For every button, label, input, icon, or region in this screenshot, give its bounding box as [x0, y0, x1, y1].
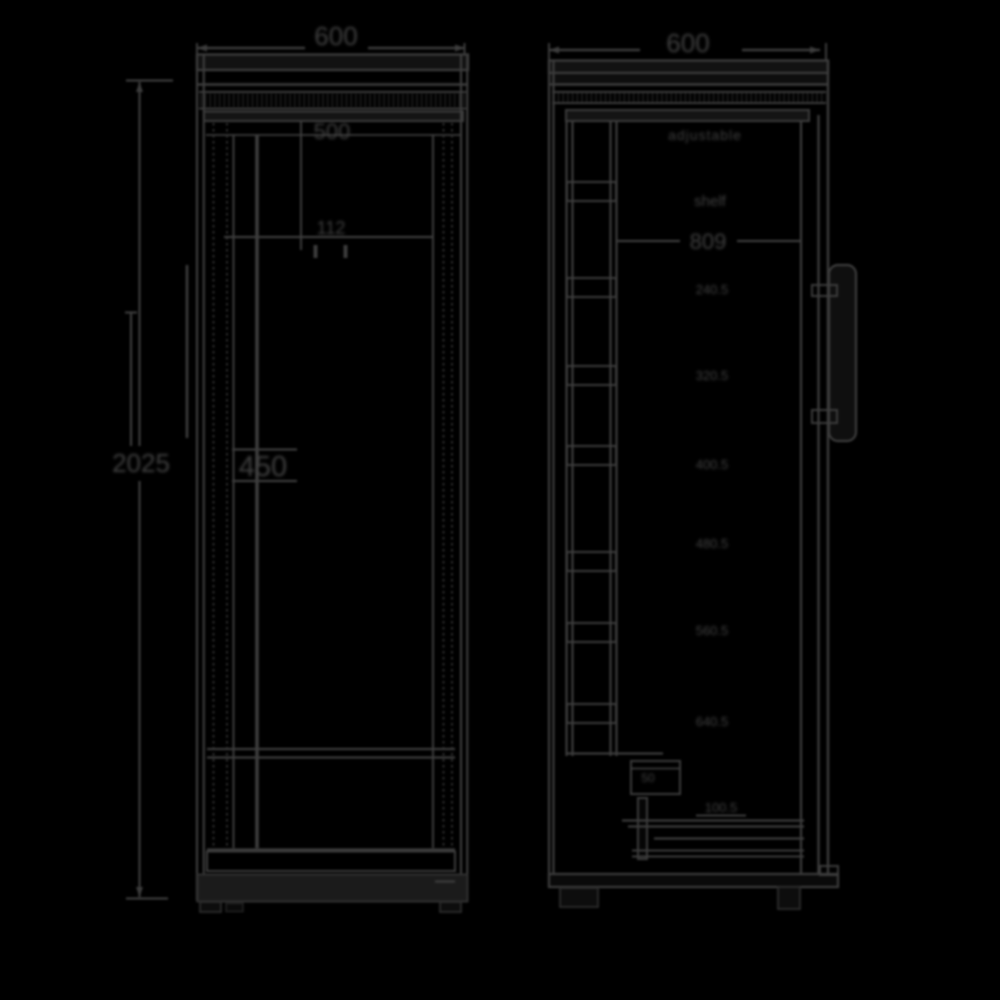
svg-text:400.5: 400.5 [696, 457, 729, 472]
svg-text:shelf: shelf [694, 193, 727, 210]
svg-text:480.5: 480.5 [696, 536, 729, 551]
svg-text:112: 112 [317, 218, 346, 238]
svg-text:240.5: 240.5 [696, 282, 729, 297]
svg-text:50: 50 [641, 771, 655, 785]
svg-text:2025: 2025 [112, 448, 170, 478]
svg-text:500: 500 [314, 119, 351, 144]
svg-text:100.5: 100.5 [705, 800, 738, 815]
svg-text:adjustable: adjustable [668, 127, 742, 143]
svg-text:600: 600 [314, 21, 357, 51]
svg-text:320.5: 320.5 [696, 368, 729, 383]
svg-text:560.5: 560.5 [696, 623, 729, 638]
svg-text:450: 450 [239, 451, 287, 483]
svg-text:809: 809 [690, 229, 727, 254]
svg-text:600: 600 [666, 28, 709, 58]
svg-text:640.5: 640.5 [696, 714, 729, 729]
